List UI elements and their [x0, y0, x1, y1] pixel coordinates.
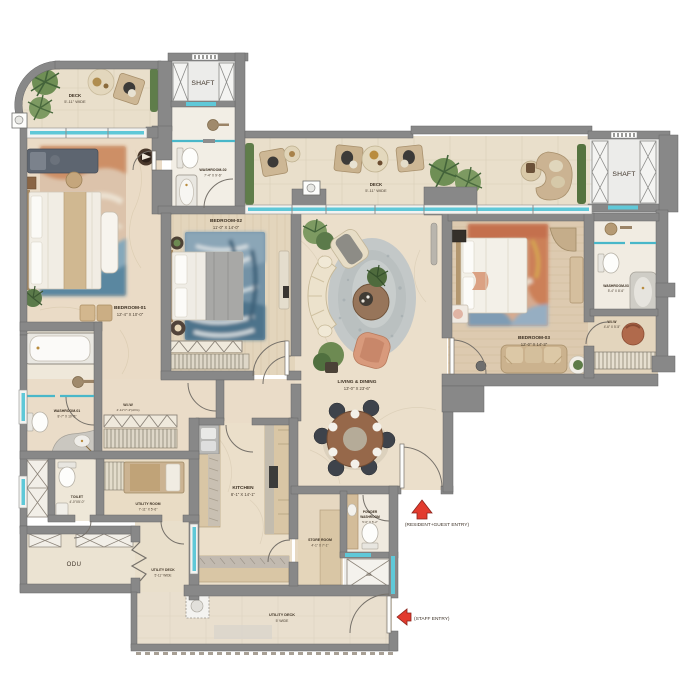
- svg-text:4'-0"X5'-0": 4'-0"X5'-0": [69, 500, 85, 504]
- svg-text:5'-0" X 5'-2": 5'-0" X 5'-2": [362, 520, 378, 524]
- svg-text:7'-4" X 9'-6": 7'-4" X 9'-6": [204, 174, 222, 178]
- svg-text:5'-11" WIDE: 5'-11" WIDE: [154, 574, 171, 578]
- svg-text:13'-0" X 23'-6": 13'-0" X 23'-6": [344, 386, 371, 391]
- svg-text:DECK: DECK: [69, 93, 82, 98]
- svg-text:BEDROOM-01: BEDROOM-01: [114, 305, 146, 311]
- svg-text:7'-11" X 5'-6": 7'-11" X 5'-6": [139, 508, 159, 512]
- svg-text:DECK: DECK: [370, 182, 383, 187]
- svg-text:SHAFT: SHAFT: [191, 80, 214, 87]
- svg-text:WASHROOM-03: WASHROOM-03: [603, 284, 629, 288]
- svg-text:W.I.W: W.I.W: [123, 403, 133, 407]
- svg-text:KITCHEN: KITCHEN: [232, 485, 254, 491]
- svg-text:5'-4" X 8'-6": 5'-4" X 8'-6": [608, 289, 625, 293]
- svg-text:W.I.W: W.I.W: [607, 320, 617, 324]
- svg-text:4'-1" X 7'-1": 4'-1" X 7'-1": [311, 544, 329, 548]
- svg-text:STORE ROOM: STORE ROOM: [308, 538, 332, 542]
- svg-text:4'-11"/7'-4"(AVG): 4'-11"/7'-4"(AVG): [116, 408, 139, 412]
- svg-text:12'-4" X 10'-0": 12'-4" X 10'-0": [117, 312, 144, 317]
- svg-text:5' WIDE: 5' WIDE: [276, 619, 289, 623]
- svg-text:BEDROOM-02: BEDROOM-02: [210, 218, 242, 224]
- svg-text:SHAFT: SHAFT: [612, 171, 635, 178]
- svg-text:12'-0" X 14'-3": 12'-0" X 14'-3": [521, 342, 548, 347]
- svg-text:5'-11" WIDE: 5'-11" WIDE: [64, 99, 86, 104]
- svg-text:(STAFF ENTRY): (STAFF ENTRY): [414, 616, 450, 622]
- svg-text:5'-11" WIDE: 5'-11" WIDE: [365, 188, 387, 193]
- svg-text:11'-0" X 14'-0": 11'-0" X 14'-0": [213, 225, 240, 230]
- svg-text:8'-7" X 10'-5": 8'-7" X 10'-5": [58, 415, 78, 419]
- svg-text:LIVING & DINING: LIVING & DINING: [338, 379, 377, 385]
- svg-text:ODU: ODU: [67, 562, 82, 568]
- svg-text:BEDROOM-03: BEDROOM-03: [518, 335, 550, 341]
- svg-text:DB: DB: [367, 573, 373, 577]
- svg-text:8'-1" X 14'-1": 8'-1" X 14'-1": [231, 492, 256, 497]
- svg-text:UTILITY ROOM: UTILITY ROOM: [135, 502, 160, 506]
- svg-text:UTILITY DECK: UTILITY DECK: [151, 568, 175, 572]
- svg-text:4'-6" X 5'-5": 4'-6" X 5'-5": [604, 325, 621, 329]
- svg-text:POWDER: POWDER: [363, 510, 378, 514]
- svg-text:WASHROOM: WASHROOM: [360, 515, 380, 519]
- svg-text:(RESIDENT+GUEST ENTRY): (RESIDENT+GUEST ENTRY): [405, 522, 470, 528]
- svg-text:UTILITY DECK: UTILITY DECK: [269, 613, 295, 617]
- svg-text:TOILET: TOILET: [71, 495, 84, 499]
- svg-text:WASHROOM-01: WASHROOM-01: [54, 409, 81, 413]
- svg-text:WASHROOM-02: WASHROOM-02: [199, 168, 226, 172]
